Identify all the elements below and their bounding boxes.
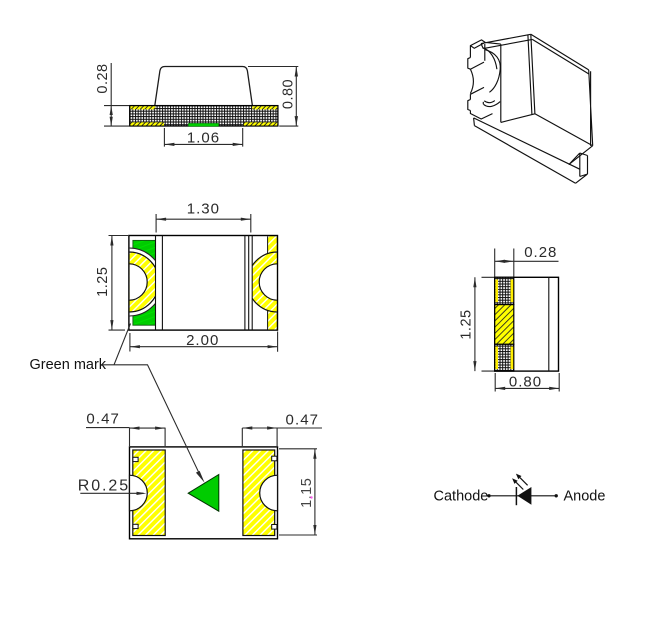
svg-text:R0.25: R0.25 — [78, 478, 130, 495]
svg-text:0.47: 0.47 — [86, 411, 120, 428]
svg-text:0.47: 0.47 — [286, 412, 320, 429]
svg-text:1.15: 1.15 — [299, 478, 315, 508]
svg-text:Cathode: Cathode — [434, 489, 489, 505]
svg-text:0.80: 0.80 — [281, 79, 297, 109]
svg-text:1.25: 1.25 — [95, 267, 111, 297]
svg-text:2.00: 2.00 — [186, 332, 219, 349]
svg-text:Anode: Anode — [564, 489, 606, 505]
svg-text:0.28: 0.28 — [524, 244, 557, 261]
svg-text:1.06: 1.06 — [187, 130, 220, 147]
svg-text:1.25: 1.25 — [458, 309, 474, 339]
svg-text:0.80: 0.80 — [509, 373, 542, 390]
svg-text:0.28: 0.28 — [95, 63, 111, 93]
svg-text:Green mark: Green mark — [30, 357, 107, 373]
svg-text:1.30: 1.30 — [187, 201, 220, 218]
